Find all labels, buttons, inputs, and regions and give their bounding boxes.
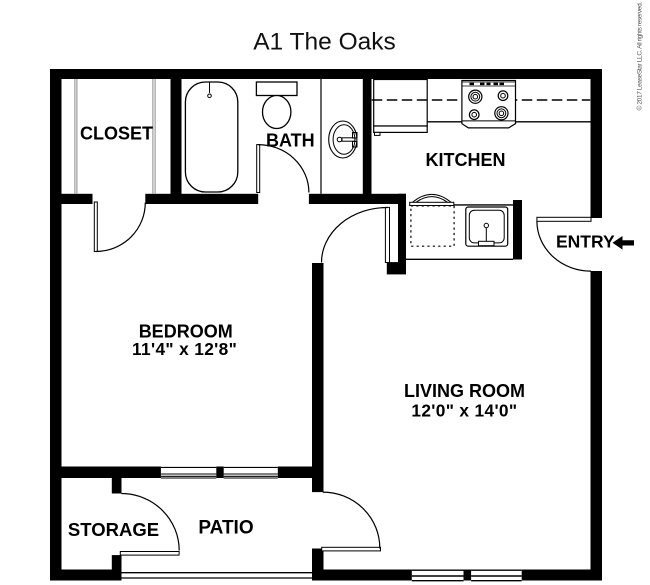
svg-text:KITCHEN: KITCHEN — [426, 150, 506, 170]
svg-text:12'0" x 14'0": 12'0" x 14'0" — [411, 401, 517, 421]
svg-text:STORAGE: STORAGE — [68, 519, 159, 540]
svg-text:PATIO: PATIO — [198, 518, 253, 539]
svg-text:A1 The Oaks: A1 The Oaks — [253, 29, 396, 56]
svg-text:BATH: BATH — [266, 130, 315, 150]
svg-text:CLOSET: CLOSET — [80, 124, 153, 144]
svg-text:ENTRY: ENTRY — [556, 232, 615, 252]
svg-text:LIVING ROOM: LIVING ROOM — [404, 381, 525, 401]
svg-text:© 2017 LeaseStar LLC. All righ: © 2017 LeaseStar LLC. All rights reserve… — [636, 2, 644, 111]
svg-text:11'4" x 12'8": 11'4" x 12'8" — [132, 339, 237, 359]
